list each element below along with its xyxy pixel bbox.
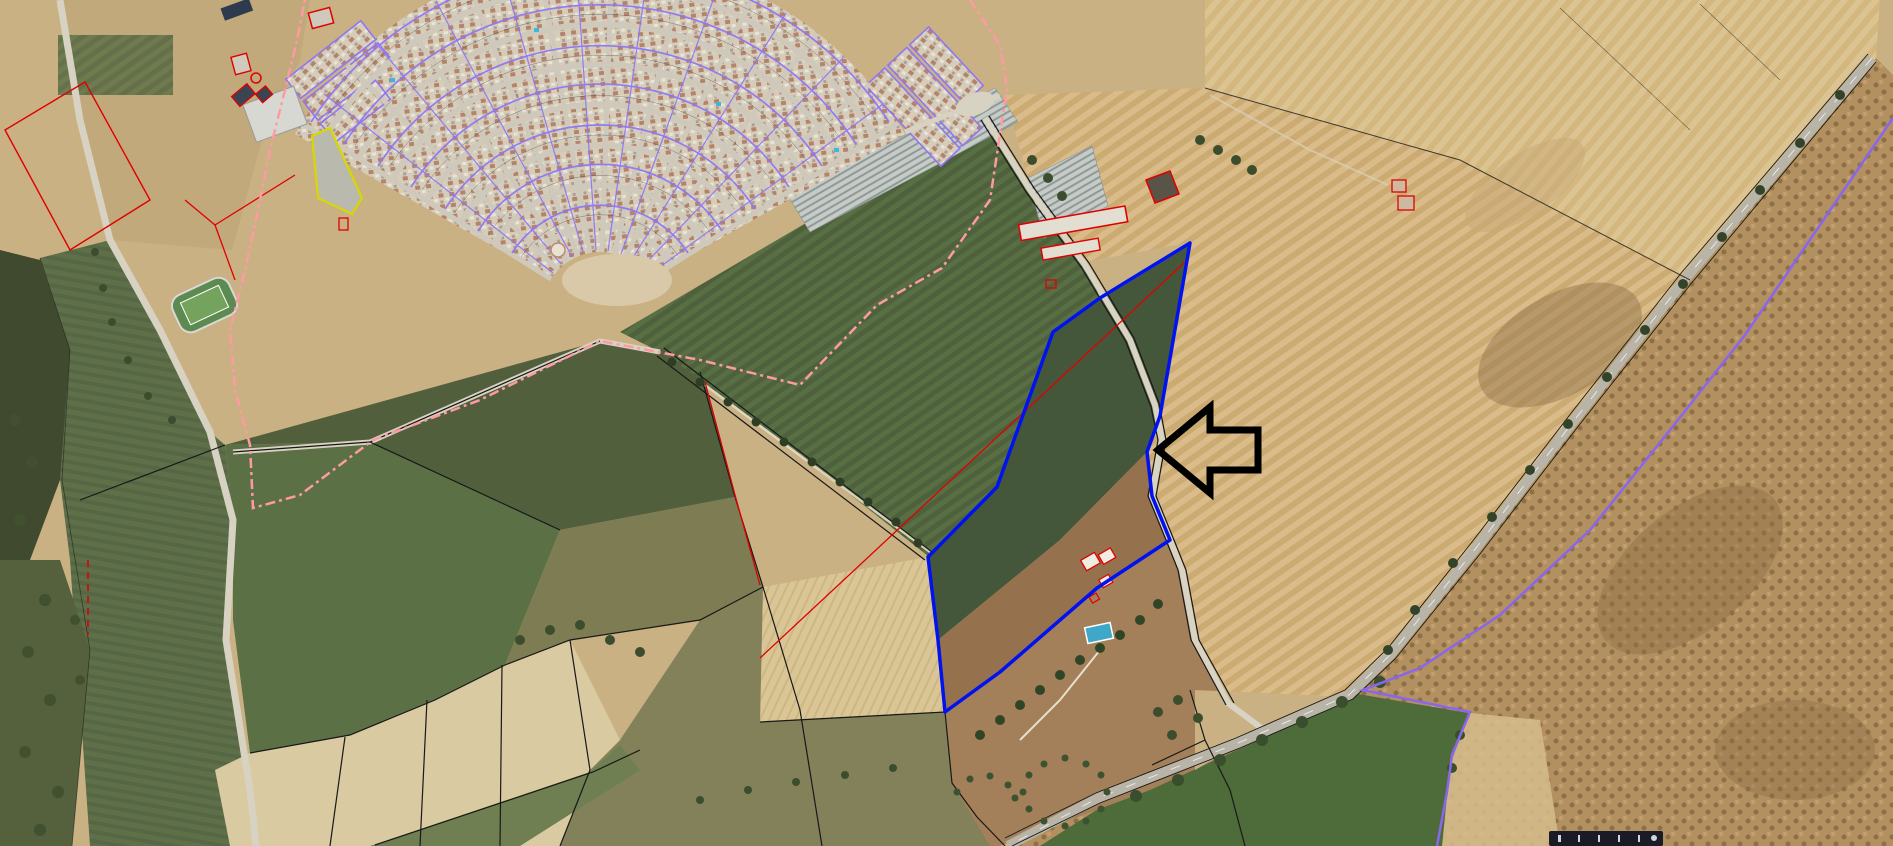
- scale-bar-fragment: [1549, 831, 1663, 846]
- town-plaza: [562, 254, 672, 306]
- aerial-cadastral-map[interactable]: [0, 0, 1893, 846]
- map-canvas: [0, 0, 1893, 846]
- bullring: [551, 243, 565, 257]
